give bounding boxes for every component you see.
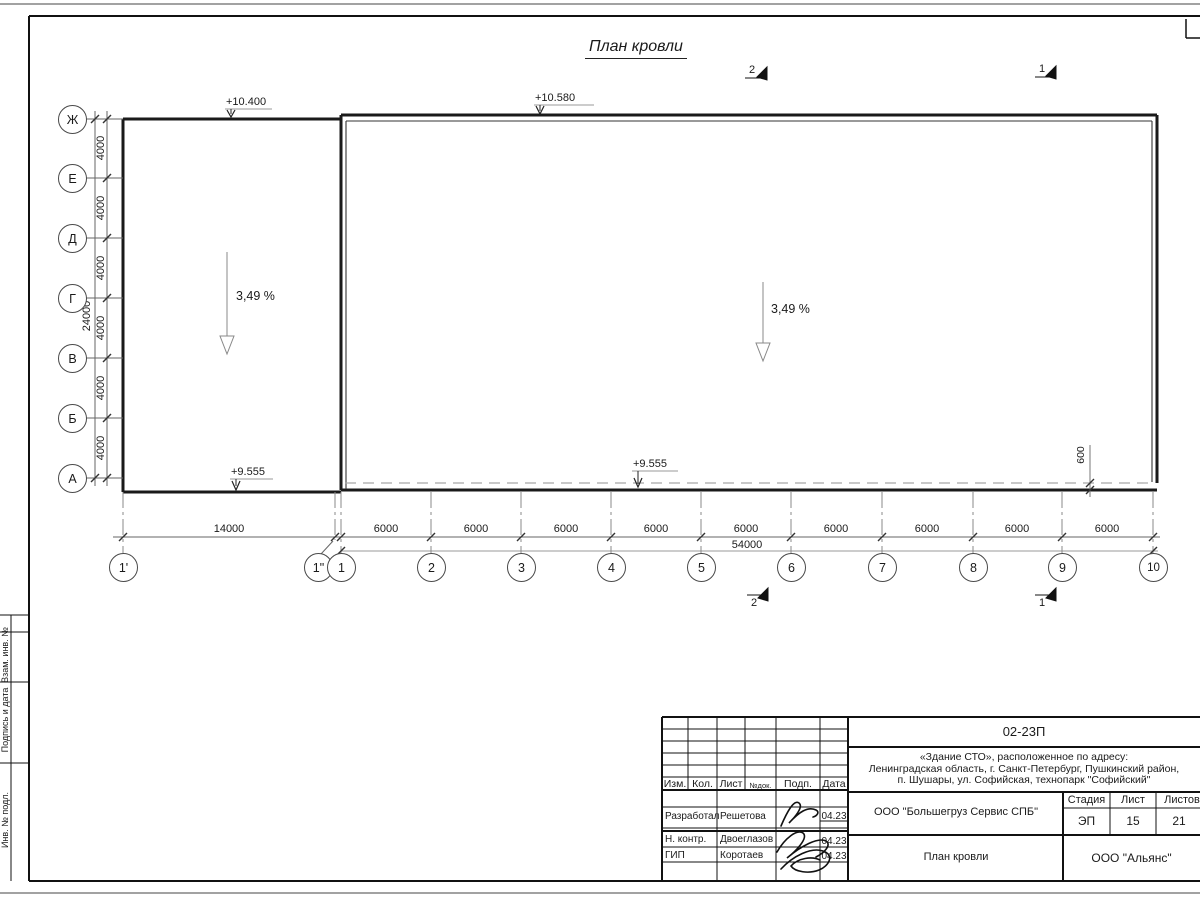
project-line: «Здание СТО», расположенное по адресу:	[850, 752, 1198, 764]
elevation-mark: +10.400	[226, 96, 266, 108]
axis-bubble-1: 1	[327, 553, 356, 582]
dim-offset-label: 600	[1075, 438, 1087, 472]
dim-label: 6000	[546, 523, 586, 535]
section-mark-label: 1	[1035, 63, 1049, 75]
dim-label: 4000	[95, 368, 107, 408]
tb-company: ООО "Большегруз Сервис СПБ"	[850, 806, 1062, 818]
tb-date: 04.23	[820, 851, 848, 862]
dim-label: 6000	[907, 523, 947, 535]
tb-sheet-title: План кровли	[850, 851, 1062, 863]
dim-label: 4000	[95, 428, 107, 468]
margin-stamp-label: Подпись и дата	[0, 684, 10, 756]
axis-bubble-4: 4	[597, 553, 626, 582]
elevation-marks	[225, 105, 678, 490]
project-description: «Здание СТО», расположенное по адресу: Л…	[850, 747, 1198, 792]
section-mark-label: 2	[747, 597, 761, 609]
tb-name: Решетова	[720, 811, 766, 822]
section-mark-label: 2	[745, 64, 759, 76]
tb-col-izm: Изм.	[662, 778, 688, 790]
dim-label: 4000	[95, 308, 107, 348]
tb-stage-label: Стадия	[1063, 794, 1110, 806]
dim-label: 14000	[199, 523, 259, 535]
axis-bubble-8: 8	[959, 553, 988, 582]
axis-bubble-7: 7	[868, 553, 897, 582]
building-main-block	[341, 115, 1157, 490]
axis-bubble-10: 10	[1139, 553, 1168, 582]
dim-label: 6000	[366, 523, 406, 535]
axis-bubble-2: 2	[417, 553, 446, 582]
roof-plan-drawing: План кровли Ж Е Д Г В Б А 1' 1" 1 2 3 4 …	[0, 0, 1200, 900]
elevation-mark: +9.555	[231, 466, 265, 478]
tb-sheet-value: 15	[1110, 814, 1156, 828]
dim-total-label: 54000	[717, 539, 777, 551]
axis-bubble-6: 6	[777, 553, 806, 582]
tb-name: Двоеглазов	[720, 834, 773, 845]
section-marks	[745, 66, 1056, 601]
tb-col-data: Дата	[820, 778, 848, 790]
tb-role: ГИП	[665, 850, 685, 861]
tb-stage-value: ЭП	[1063, 814, 1110, 828]
axis-bubble-5: 5	[687, 553, 716, 582]
section-mark-label: 1	[1035, 597, 1049, 609]
tb-col-kol: Кол.	[688, 778, 717, 790]
building-left-block	[123, 119, 341, 492]
tb-role: Н. контр.	[665, 834, 706, 845]
tb-role: Разработал	[665, 811, 719, 822]
tb-org: ООО "Альянс"	[1063, 851, 1200, 865]
tb-col-podp: Подп.	[776, 778, 820, 790]
axis-bubble-a: А	[58, 464, 87, 493]
margin-stamp-label: Взам. инв. №	[0, 619, 10, 691]
tb-sheets-label: Листов	[1156, 794, 1200, 806]
axis-bubble-d: Д	[58, 224, 87, 253]
dim-label: 6000	[726, 523, 766, 535]
dim-label: 6000	[456, 523, 496, 535]
axis-bubble-1p: 1'	[109, 553, 138, 582]
dim-label: 4000	[95, 188, 107, 228]
tb-col-ndok: №док.	[745, 781, 776, 790]
slope-arrows	[220, 252, 770, 361]
dim-label: 6000	[997, 523, 1037, 535]
bottom-dimension-lines	[113, 537, 1160, 554]
axis-bubble-b: Б	[58, 404, 87, 433]
dim-label: 6000	[1087, 523, 1127, 535]
axis-bubble-zh: Ж	[58, 105, 87, 134]
dim-label: 4000	[95, 128, 107, 168]
slope-label-left: 3,49 %	[236, 289, 275, 303]
margin-stamp-label: Инв. № подл.	[0, 784, 10, 856]
axis-bubble-g: Г	[58, 284, 87, 313]
dim-label: 4000	[95, 248, 107, 288]
elevation-mark: +9.555	[633, 458, 667, 470]
project-line: п. Шушары, ул. Софийская, технопарк "Соф…	[850, 775, 1198, 787]
tb-sheets-value: 21	[1156, 814, 1200, 828]
tb-sheet-label: Лист	[1110, 794, 1156, 806]
axis-bubble-e: Е	[58, 164, 87, 193]
tb-col-list: Лист	[717, 778, 745, 790]
dim-label: 6000	[636, 523, 676, 535]
axis-bubble-3: 3	[507, 553, 536, 582]
axis-bubble-9: 9	[1048, 553, 1077, 582]
axis-bubble-v: В	[58, 344, 87, 373]
tb-date: 04.23	[820, 836, 848, 847]
elevation-mark: +10.580	[535, 92, 575, 104]
drawing-title: План кровли	[585, 38, 687, 59]
dim-label: 6000	[816, 523, 856, 535]
slope-label-main: 3,49 %	[771, 302, 810, 316]
tb-name: Коротаев	[720, 850, 763, 861]
doc-number: 02-23П	[848, 724, 1200, 739]
tb-date: 04.23	[820, 811, 848, 822]
